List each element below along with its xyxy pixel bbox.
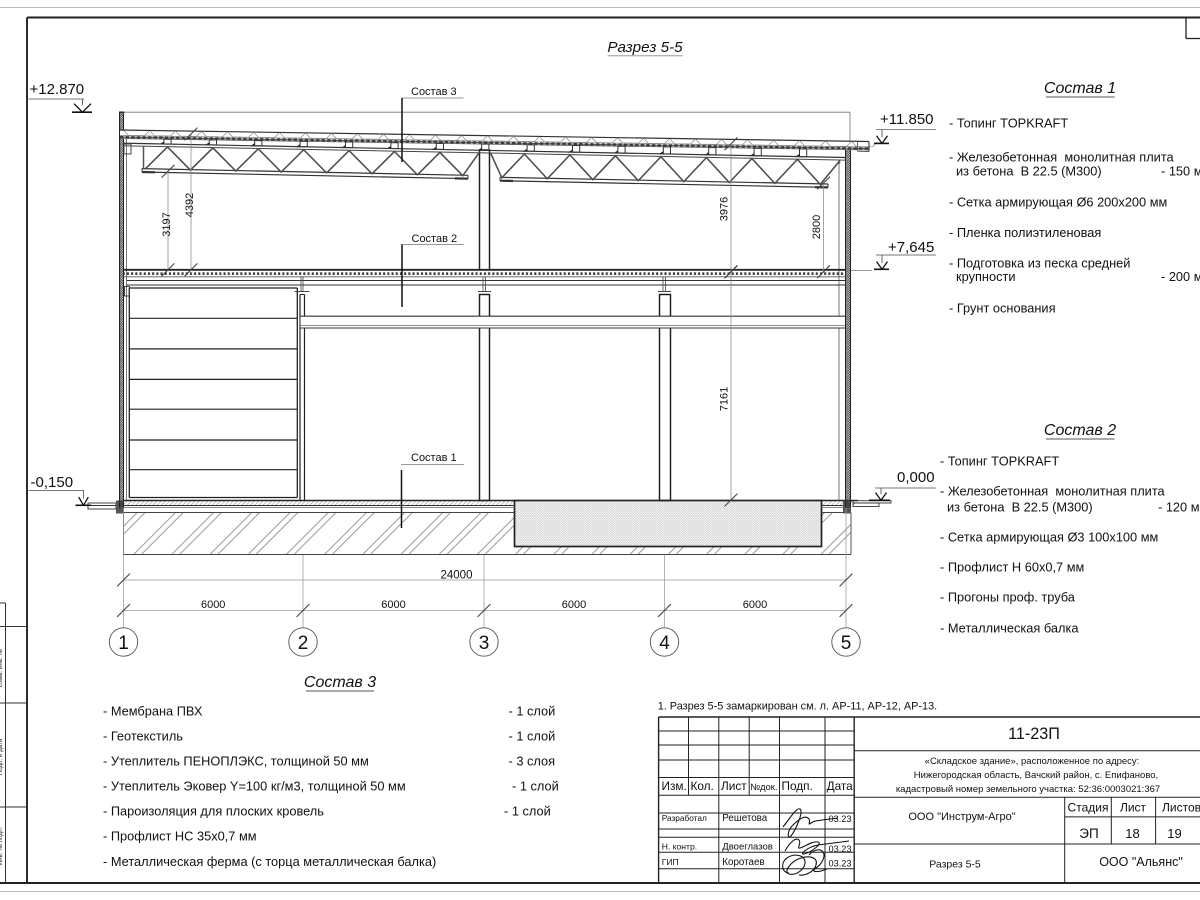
svg-text:№док.: №док. [750,782,777,792]
svg-text:3197: 3197 [161,212,173,236]
svg-text:- Профлист Н 60х0,7 мм: - Профлист Н 60х0,7 мм [940,560,1084,575]
svg-text:18: 18 [1125,826,1139,841]
svg-text:19: 19 [1167,826,1181,841]
svg-text:- Топинг TOPKRAFT: - Топинг TOPKRAFT [940,454,1059,469]
svg-text:Коротаев: Коротаев [722,857,764,868]
svg-text:+12.870: +12.870 [30,81,85,98]
svg-text:- Металлическая ферма (с торца: - Металлическая ферма (с торца металличе… [103,854,436,869]
svg-text:-0,150: -0,150 [31,474,74,491]
svg-text:6000: 6000 [201,599,225,611]
svg-text:4392: 4392 [184,193,196,217]
svg-text:Состав 3: Состав 3 [304,674,376,691]
svg-text:- Сетка армирующая Ø6 200х200: - Сетка армирующая Ø6 200х200 мм [949,195,1167,210]
svg-text:5: 5 [841,633,852,654]
svg-text:- Металлическая балка: - Металлическая балка [940,621,1079,636]
svg-text:- Профлист НС 35х0,7 мм: - Профлист НС 35х0,7 мм [103,829,257,844]
svg-text:1: 1 [118,633,129,654]
svg-text:Двоеглазов: Двоеглазов [722,842,773,853]
svg-text:Лист: Лист [721,779,747,793]
svg-text:Нижегородская область, Вачский: Нижегородская область, Вачский район, с.… [914,770,1158,781]
svg-text:Состав 2: Состав 2 [1044,422,1116,439]
svg-text:Н. контр.: Н. контр. [662,842,697,852]
svg-text:кадастровый номер земельного у: кадастровый номер земельного участка: 52… [896,784,1160,795]
svg-text:6000: 6000 [381,599,405,611]
svg-text:03.23: 03.23 [829,859,852,869]
svg-text:24000: 24000 [441,570,473,582]
svg-text:ГИП: ГИП [662,857,679,867]
svg-text:- 3 слоя: - 3 слоя [509,754,556,769]
svg-text:11-23П: 11-23П [1008,725,1060,743]
svg-text:6000: 6000 [562,599,586,611]
svg-text:ЭП: ЭП [1079,826,1098,841]
svg-text:Подп.: Подп. [782,779,813,793]
svg-text:Лист: Лист [1120,801,1147,815]
svg-text:- Пароизоляция для плоских кро: - Пароизоляция для плоских кровель [103,804,324,819]
svg-text:Подп. и дата: Подп. и дата [0,738,4,775]
svg-text:Состав 3: Состав 3 [411,86,457,98]
svg-text:- Геотекстиль: - Геотекстиль [103,729,183,744]
svg-text:- Мембрана ПВХ: - Мембрана ПВХ [103,704,203,719]
svg-text:Стадия: Стадия [1068,801,1109,815]
svg-text:ООО "Инструм-Агро": ООО "Инструм-Агро" [908,811,1015,823]
svg-text:- 1 слой: - 1 слой [509,729,556,744]
svg-text:Состав 2: Состав 2 [412,233,458,245]
svg-text:- Железобетонная монолитная п: - Железобетонная монолитная плита [940,484,1166,499]
svg-text:- Топинг TOPKRAFT: - Топинг TOPKRAFT [949,116,1068,131]
svg-text:из бетона В 22.5 (М300): из бетона В 22.5 (М300) [956,164,1102,179]
svg-text:- Пленка полиэтиленовая: - Пленка полиэтиленовая [949,225,1101,240]
svg-text:Инв. № подл.: Инв. № подл. [0,826,4,865]
svg-text:Взам. инв. №: Взам. инв. № [0,648,4,687]
svg-text:7161: 7161 [719,387,731,411]
svg-text:2: 2 [298,633,309,654]
svg-text:из бетона В 22.5 (М300): из бетона В 22.5 (М300) [947,500,1093,515]
svg-text:+11.850: +11.850 [880,111,934,128]
svg-text:+7,645: +7,645 [888,239,934,256]
svg-text:- Прогоны проф. труба: - Прогоны проф. труба [940,590,1076,605]
svg-text:- Железобетонная монолитная п: - Железобетонная монолитная плита [949,150,1175,165]
svg-text:Кол.: Кол. [691,779,714,793]
svg-text:Листов: Листов [1162,801,1200,815]
svg-text:«Складское здание», расположен: «Складское здание», расположенное по адр… [925,756,1140,767]
svg-text:1. Разрез 5-5 замаркирован см.: 1. Разрез 5-5 замаркирован см. л. АР-11,… [658,701,938,713]
svg-text:- Сетка армирующая Ø3 100х100: - Сетка армирующая Ø3 100х100 мм [940,530,1158,545]
svg-text:- 200 мм: - 200 мм [1161,269,1200,284]
svg-text:- Грунт основания: - Грунт основания [949,301,1056,316]
svg-text:0,000: 0,000 [897,469,935,486]
svg-text:Разрез 5-5: Разрез 5-5 [929,859,981,871]
svg-text:- Утеплитель Эковер Y=100 кг/м: - Утеплитель Эковер Y=100 кг/м3, толщино… [103,779,406,794]
svg-text:- 1 слой: - 1 слой [512,779,559,794]
svg-text:Дата: Дата [827,779,854,793]
svg-text:3: 3 [479,633,490,654]
svg-text:Решетова: Решетова [722,813,767,824]
svg-text:крупности: крупности [956,269,1016,284]
svg-text:- Утеплитель ПЕНОПЛЭКС, толщин: - Утеплитель ПЕНОПЛЭКС, толщиной 50 мм [103,754,369,769]
svg-text:- 1 слой: - 1 слой [504,804,551,819]
svg-text:Разрез 5-5: Разрез 5-5 [607,39,683,56]
svg-text:3976: 3976 [719,197,731,221]
svg-text:4: 4 [659,633,670,654]
svg-text:Разработал: Разработал [662,813,707,823]
svg-text:6000: 6000 [743,599,767,611]
svg-text:- 150 мм: - 150 мм [1161,164,1200,179]
svg-text:- 1 слой: - 1 слой [509,704,556,719]
svg-text:ООО "Альянс": ООО "Альянс" [1099,855,1183,869]
svg-text:Изм.: Изм. [662,779,687,793]
svg-text:03.23: 03.23 [829,844,852,854]
svg-text:- 120 мм: - 120 мм [1158,500,1200,515]
svg-text:2800: 2800 [811,215,823,239]
svg-text:Состав 1: Состав 1 [1044,80,1116,97]
svg-text:Состав 1: Состав 1 [411,452,457,464]
